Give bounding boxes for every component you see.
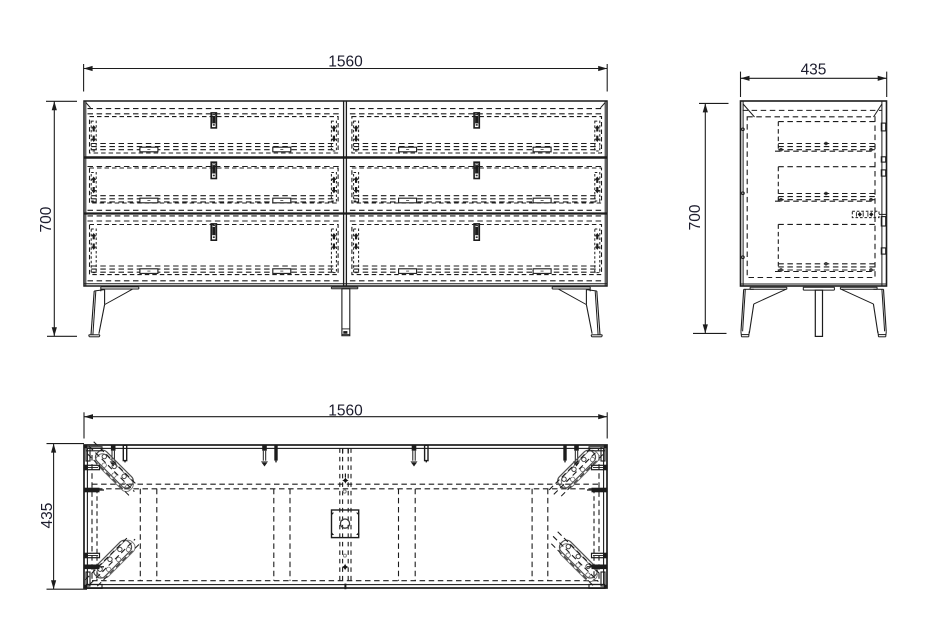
svg-text:700: 700 xyxy=(687,204,704,230)
svg-text:1560: 1560 xyxy=(328,403,363,420)
svg-text:435: 435 xyxy=(801,62,827,79)
svg-text:1560: 1560 xyxy=(328,54,363,71)
svg-text:435: 435 xyxy=(39,503,56,529)
svg-text:700: 700 xyxy=(38,206,55,232)
